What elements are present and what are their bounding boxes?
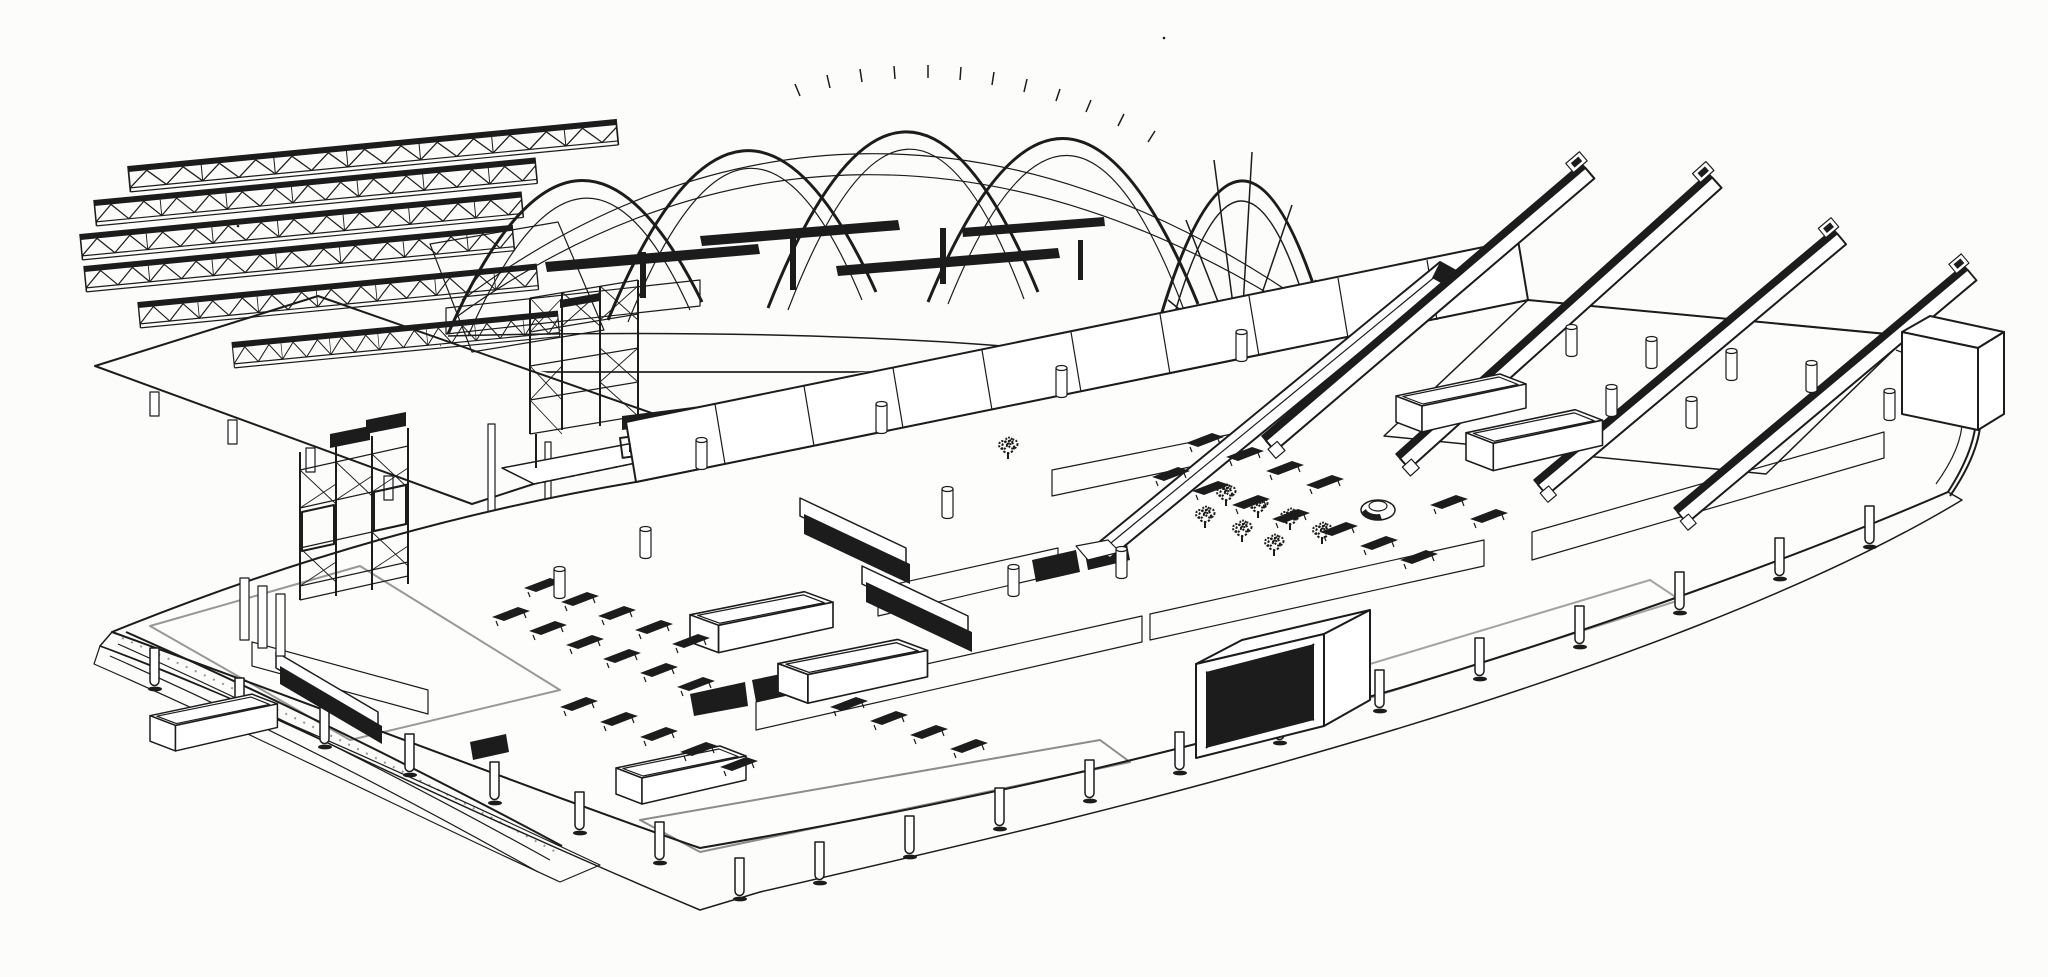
ink-speckle <box>1163 37 1166 40</box>
roof-finials <box>795 65 1155 142</box>
deck-feet <box>150 392 393 500</box>
roof-truss <box>232 311 560 368</box>
ink-speckle <box>237 225 240 228</box>
circular-kiosk <box>1361 500 1395 520</box>
open-box-room <box>150 694 277 751</box>
exploded-axonometric-drawing: Exploded axonometric ink drawing of a ra… <box>0 0 2048 977</box>
arch-rib <box>768 132 1038 308</box>
eaves-lattice <box>446 280 700 334</box>
roof-truss <box>128 119 618 192</box>
support-gantry <box>530 280 638 468</box>
drawing-sheet: Exploded axonometric ink drawing of a ra… <box>0 0 2048 977</box>
